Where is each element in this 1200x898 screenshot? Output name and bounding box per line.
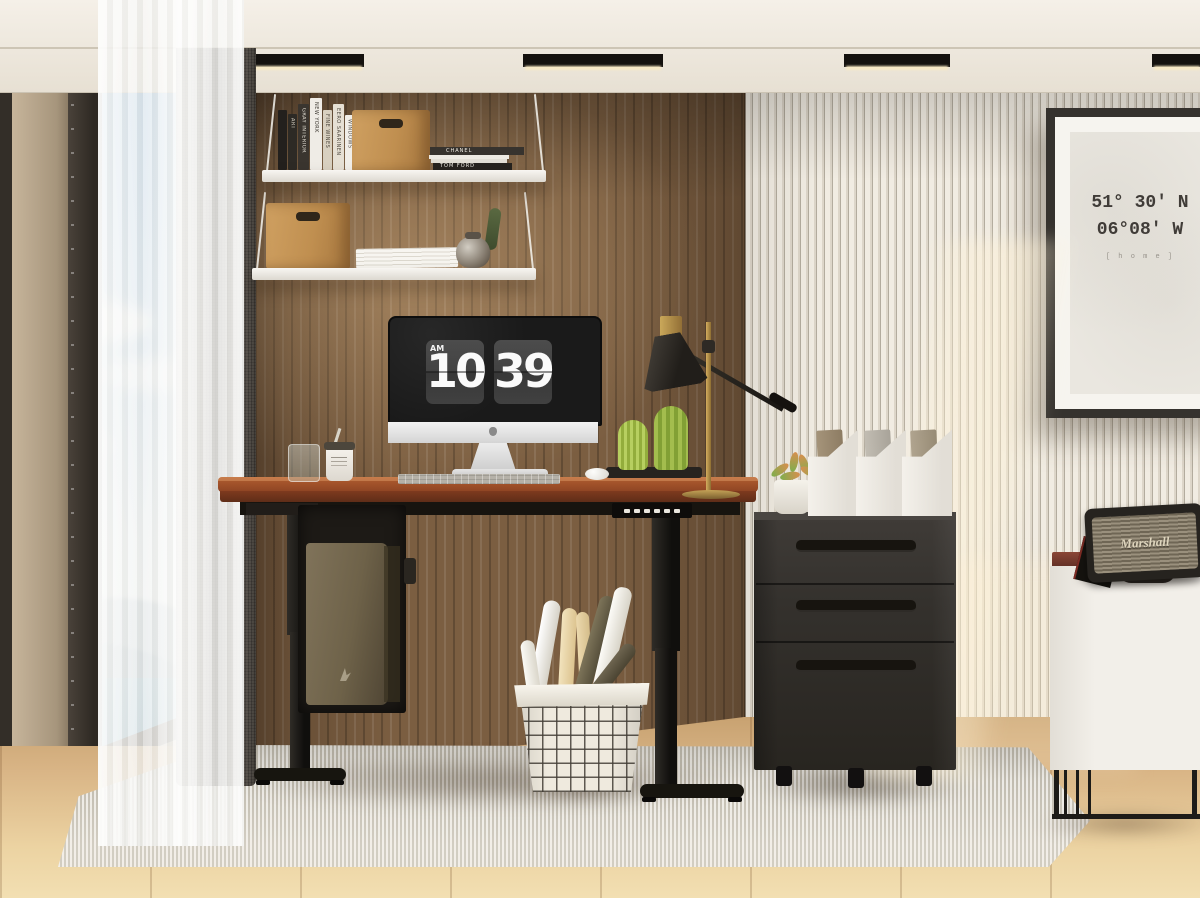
caster-wheel <box>776 766 792 786</box>
sideboard-leg <box>1192 770 1197 818</box>
desk-leg-right-lower <box>655 648 677 790</box>
poster-text: 51° 30' N 06°08' W [ h o m e ] <box>1070 190 1200 261</box>
track-light-glow <box>248 66 362 70</box>
sideboard-leg <box>1054 770 1059 818</box>
box-handle-cutout <box>379 119 403 128</box>
track-light-glow <box>1154 66 1200 70</box>
poster-paper: 51° 30' N 06°08' W [ h o m e ] <box>1070 132 1200 394</box>
book-spine: NEW YORK <box>310 98 321 170</box>
drawer-divider <box>756 641 954 643</box>
drawer-handle[interactable] <box>796 660 916 672</box>
desk-foot-right <box>640 784 744 798</box>
basket-fabric-rim <box>510 683 654 708</box>
foot-pad <box>256 780 270 785</box>
desk-height-controller[interactable] <box>612 503 692 518</box>
lamp-base <box>682 490 740 499</box>
cactus-small <box>618 420 648 470</box>
desk-front-edge <box>220 491 756 502</box>
book-row: ART GRAY INTERIOR NEW YORK FINE WINES EE… <box>278 96 354 170</box>
track-light-glow <box>525 66 661 70</box>
box-handle-cutout <box>296 212 320 221</box>
caster-wheel <box>848 768 864 788</box>
floating-shelf-bottom <box>252 268 536 280</box>
speaker-grille: Marshall <box>1092 512 1199 573</box>
sideboard-frame-bar <box>1064 770 1067 814</box>
controller-button[interactable] <box>654 509 660 513</box>
imac-screen: AM 10 39 <box>388 316 602 426</box>
book-spine: FINE WINES <box>323 110 332 170</box>
mouse[interactable] <box>585 468 609 480</box>
storage-box <box>352 110 430 172</box>
desk-leg-right <box>652 515 680 651</box>
drawer-divider <box>756 583 954 585</box>
wire-basket <box>514 700 650 792</box>
sideboard-frame-bar <box>1076 770 1079 814</box>
paper-stack <box>356 247 458 269</box>
storage-box <box>266 203 350 269</box>
coffee-cup-lid <box>324 442 355 450</box>
book-spine: EERO SAARINEN <box>333 104 344 170</box>
sideboard-frame-bar <box>1088 770 1091 814</box>
book-spine <box>278 110 287 170</box>
pc-tower <box>306 543 388 705</box>
mount-clamp <box>404 558 416 584</box>
keyboard[interactable] <box>398 474 560 484</box>
stacked-book: TOM FORD <box>433 163 512 170</box>
sideboard-frame-crossbar <box>1052 814 1200 819</box>
controller-button[interactable] <box>624 509 630 513</box>
book-spine: ART <box>288 114 296 170</box>
glass-plant-vase <box>288 444 320 482</box>
drawer-handle[interactable] <box>796 540 916 552</box>
poster-longitude: 06°08' W <box>1070 217 1200 244</box>
controller-button[interactable] <box>644 509 650 513</box>
foot-pad <box>728 797 742 802</box>
floating-shelf-top <box>262 170 546 182</box>
sheer-curtain <box>98 0 244 846</box>
caster-wheel <box>916 766 932 786</box>
cactus-tall <box>654 406 688 470</box>
book-spine: GRAY INTERIOR <box>298 104 310 170</box>
apple-logo-icon <box>489 427 497 436</box>
stacked-book: CHANEL <box>430 147 524 155</box>
magazine-file <box>808 426 858 516</box>
pc-tower-side <box>384 546 400 702</box>
poster-latitude: 51° 30' N <box>1070 190 1200 217</box>
glass-jar <box>456 236 490 268</box>
marshall-logo: Marshall <box>1120 534 1170 553</box>
lamp-joint <box>702 340 715 353</box>
controller-button[interactable] <box>634 509 640 513</box>
track-light-glow <box>846 66 948 70</box>
home-office-scene: ART GRAY INTERIOR NEW YORK FINE WINES EE… <box>0 0 1200 898</box>
controller-button[interactable] <box>664 509 670 513</box>
foot-pad <box>642 797 656 802</box>
sideboard <box>1050 566 1200 770</box>
poster-caption: [ h o m e ] <box>1070 253 1200 261</box>
clock-meridiem: AM <box>430 344 444 353</box>
coffee-cup <box>326 447 353 481</box>
controller-button[interactable] <box>674 509 680 513</box>
succulent-pot <box>774 480 810 514</box>
magazine-file <box>902 426 952 516</box>
flip-clock-minute: 39 <box>494 340 552 404</box>
framed-coordinates-poster: 51° 30' N 06°08' W [ h o m e ] <box>1046 108 1200 418</box>
wall-seam <box>744 92 746 752</box>
magazine-file <box>856 426 906 516</box>
foot-pad <box>330 780 344 785</box>
drawer-handle[interactable] <box>796 600 916 612</box>
bluetooth-speaker: Marshall <box>1084 503 1200 583</box>
